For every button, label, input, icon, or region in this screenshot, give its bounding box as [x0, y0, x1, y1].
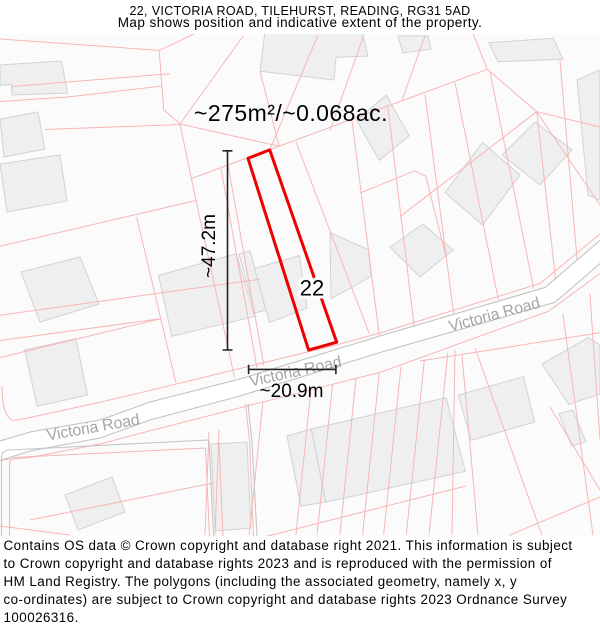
svg-text:22: 22	[300, 276, 324, 301]
svg-text:~20.9m: ~20.9m	[260, 381, 324, 402]
svg-text:~47.2m: ~47.2m	[199, 214, 220, 278]
svg-text:~275m²/~0.068ac.: ~275m²/~0.068ac.	[194, 100, 388, 126]
